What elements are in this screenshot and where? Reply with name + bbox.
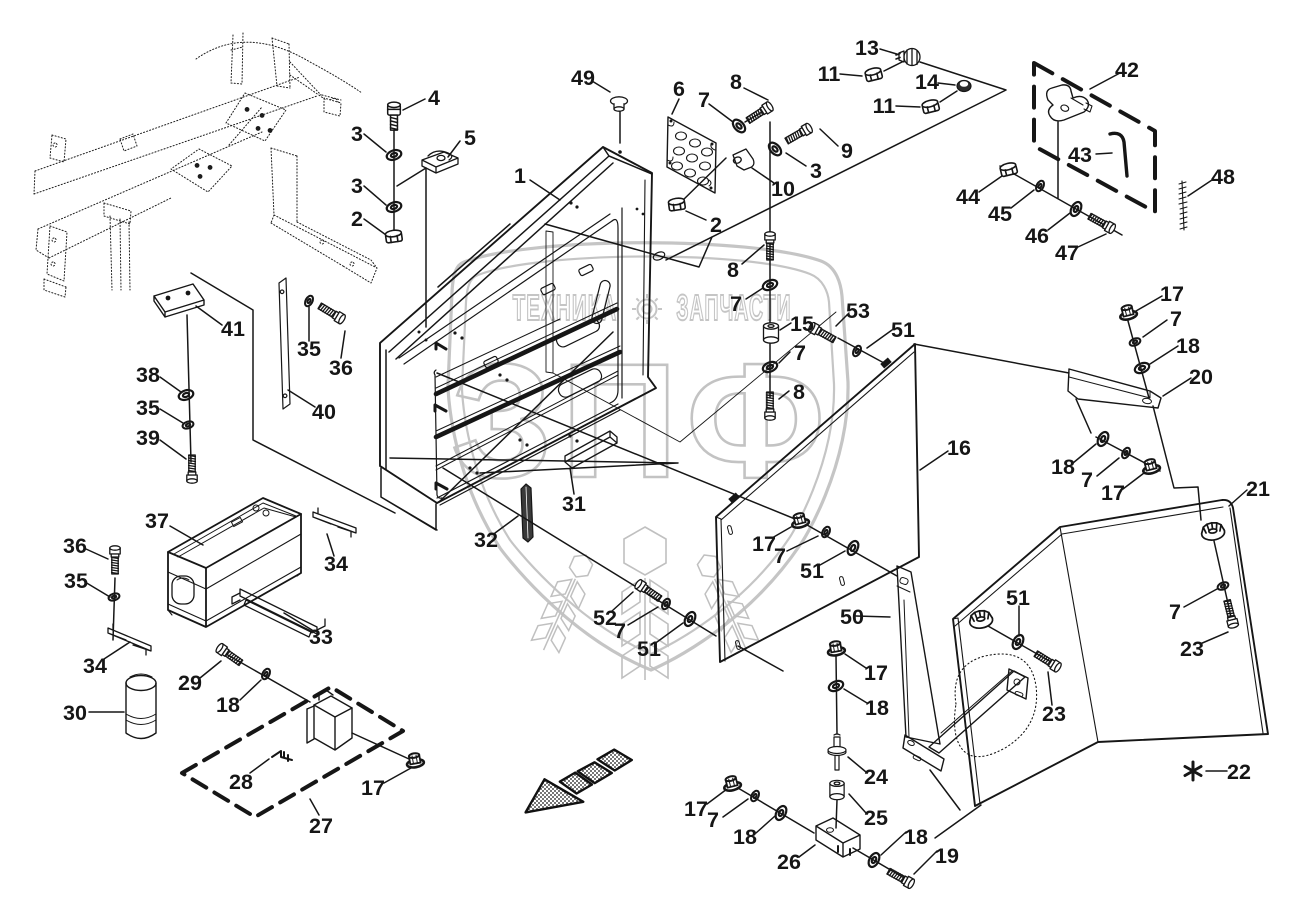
- svg-text:17: 17: [752, 532, 776, 556]
- svg-text:18: 18: [904, 825, 928, 849]
- svg-text:49: 49: [571, 66, 595, 90]
- svg-text:51: 51: [800, 559, 824, 583]
- svg-text:7: 7: [707, 808, 719, 832]
- svg-text:34: 34: [324, 552, 348, 576]
- svg-text:29: 29: [178, 671, 202, 695]
- svg-text:8: 8: [730, 70, 742, 94]
- svg-text:48: 48: [1211, 165, 1235, 189]
- svg-text:17: 17: [684, 797, 708, 821]
- svg-text:4: 4: [428, 86, 440, 110]
- svg-text:7: 7: [1169, 600, 1181, 624]
- svg-text:35: 35: [136, 396, 160, 420]
- svg-text:51: 51: [891, 318, 915, 342]
- svg-text:11: 11: [818, 62, 841, 86]
- svg-text:32: 32: [474, 528, 498, 552]
- svg-text:38: 38: [136, 363, 160, 387]
- svg-text:7: 7: [794, 341, 806, 365]
- svg-text:23: 23: [1042, 702, 1066, 726]
- svg-text:18: 18: [865, 696, 889, 720]
- svg-text:23: 23: [1180, 637, 1204, 661]
- svg-text:26: 26: [777, 850, 801, 874]
- svg-text:51: 51: [1006, 586, 1030, 610]
- svg-text:33: 33: [309, 625, 333, 649]
- svg-text:17: 17: [1101, 481, 1125, 505]
- svg-text:43: 43: [1068, 143, 1092, 167]
- svg-text:21: 21: [1246, 477, 1270, 501]
- svg-text:18: 18: [216, 693, 240, 717]
- svg-text:17: 17: [361, 776, 385, 800]
- svg-text:36: 36: [329, 356, 353, 380]
- svg-text:20: 20: [1189, 365, 1213, 389]
- svg-text:41: 41: [221, 317, 245, 341]
- svg-text:51: 51: [637, 637, 661, 661]
- svg-text:46: 46: [1025, 224, 1049, 248]
- svg-text:ТЕХНИКА: ТЕХНИКА: [513, 288, 618, 329]
- svg-text:6: 6: [673, 77, 685, 101]
- svg-text:14: 14: [915, 70, 939, 94]
- svg-text:15: 15: [790, 312, 814, 336]
- svg-text:7: 7: [1081, 468, 1093, 492]
- svg-text:3: 3: [351, 122, 363, 146]
- svg-text:45: 45: [988, 202, 1012, 226]
- svg-text:44: 44: [956, 185, 980, 209]
- svg-text:22: 22: [1227, 760, 1251, 784]
- svg-text:7: 7: [614, 619, 626, 643]
- svg-text:5: 5: [464, 126, 476, 150]
- svg-text:34: 34: [83, 654, 107, 678]
- svg-text:18: 18: [1176, 334, 1200, 358]
- svg-text:9: 9: [841, 139, 853, 163]
- svg-text:18: 18: [733, 825, 757, 849]
- svg-text:42: 42: [1115, 58, 1139, 82]
- svg-text:37: 37: [145, 509, 169, 533]
- svg-text:50: 50: [840, 605, 864, 629]
- svg-text:16: 16: [947, 436, 971, 460]
- svg-text:10: 10: [771, 177, 795, 201]
- svg-text:25: 25: [864, 806, 888, 830]
- svg-text:3: 3: [810, 159, 822, 183]
- svg-text:47: 47: [1055, 241, 1079, 265]
- svg-text:53: 53: [846, 299, 870, 323]
- svg-text:7: 7: [730, 292, 742, 316]
- svg-text:1: 1: [514, 164, 526, 188]
- svg-text:35: 35: [297, 337, 321, 361]
- svg-text:ЗПФ: ЗПФ: [451, 329, 833, 512]
- svg-text:40: 40: [312, 400, 336, 424]
- svg-text:2: 2: [351, 207, 363, 231]
- svg-text:8: 8: [727, 258, 739, 282]
- svg-text:3: 3: [351, 174, 363, 198]
- svg-text:31: 31: [562, 492, 586, 516]
- svg-text:7: 7: [774, 544, 786, 568]
- svg-text:2: 2: [710, 213, 722, 237]
- svg-text:27: 27: [309, 814, 333, 838]
- svg-text:13: 13: [855, 36, 879, 60]
- svg-text:17: 17: [864, 661, 888, 685]
- svg-text:7: 7: [698, 88, 710, 112]
- svg-text:19: 19: [935, 844, 959, 868]
- svg-text:18: 18: [1051, 455, 1075, 479]
- svg-text:30: 30: [63, 701, 87, 725]
- svg-text:24: 24: [864, 765, 888, 789]
- svg-text:7: 7: [1170, 307, 1182, 331]
- svg-text:36: 36: [63, 534, 87, 558]
- svg-text:11: 11: [873, 94, 896, 118]
- svg-text:28: 28: [229, 770, 253, 794]
- svg-text:39: 39: [136, 426, 160, 450]
- svg-text:17: 17: [1160, 282, 1184, 306]
- svg-text:35: 35: [64, 569, 88, 593]
- svg-text:8: 8: [793, 380, 805, 404]
